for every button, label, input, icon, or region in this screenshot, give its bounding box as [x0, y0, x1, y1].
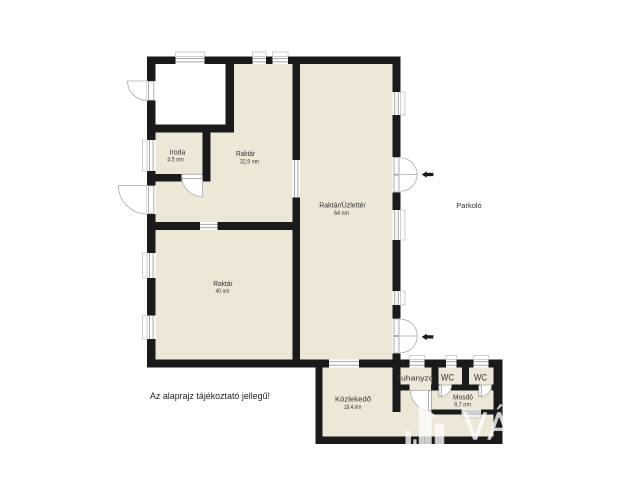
svg-text:Az alaprajz tájékoztató jelleg: Az alaprajz tájékoztató jellegű!: [150, 391, 270, 401]
svg-text:9,7 nm: 9,7 nm: [454, 403, 471, 409]
svg-text:4.5 nm: 4.5 nm: [167, 158, 184, 164]
svg-text:18.4 nm: 18.4 nm: [344, 405, 362, 411]
svg-text:64 nm: 64 nm: [334, 211, 349, 217]
svg-text:Raktár: Raktár: [213, 279, 233, 288]
svg-text:WC: WC: [441, 373, 454, 384]
svg-text:Raktár/Üzlettér: Raktár/Üzlettér: [319, 201, 366, 210]
svg-text:Zuhanyzó: Zuhanyzó: [396, 373, 434, 382]
svg-text:WC: WC: [474, 373, 487, 384]
svg-text:Parkoló: Parkoló: [456, 201, 482, 210]
svg-text:40 nm: 40 nm: [216, 289, 230, 295]
svg-text:Mosdó: Mosdó: [453, 392, 473, 401]
svg-text:Közlekedő: Közlekedő: [335, 395, 371, 404]
svg-text:Iroda: Iroda: [170, 148, 186, 157]
svg-text:Raktár: Raktár: [236, 149, 255, 158]
svg-text:32,9 nm: 32,9 nm: [240, 160, 259, 166]
